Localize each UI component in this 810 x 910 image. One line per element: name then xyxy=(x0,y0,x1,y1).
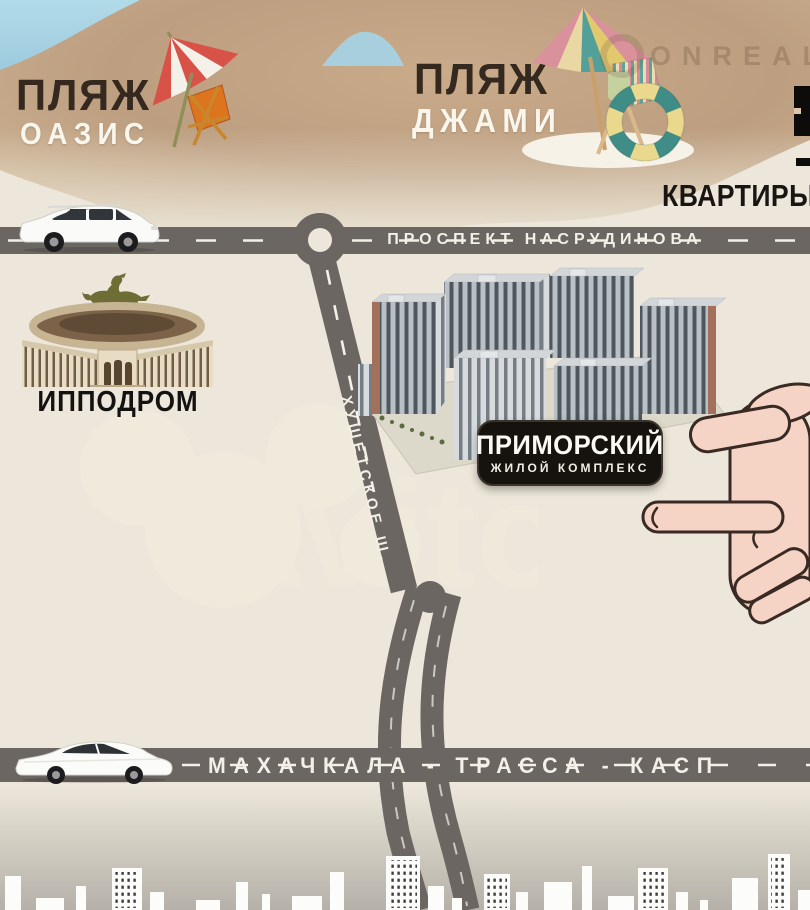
beach-dzhami-icons xyxy=(520,2,705,172)
lifebuoy-icon xyxy=(606,83,684,161)
agency-watermark: ONREALT xyxy=(600,34,810,78)
listing-type-heading: КВАРТИРЫ xyxy=(662,178,810,214)
hippodrome-label: ИППОДРОМ xyxy=(35,386,201,419)
deck-chair-orange-icon xyxy=(188,85,230,145)
complex-subtitle: ЖИЛОЙ КОМПЛЕКС xyxy=(491,461,650,475)
cropped-logo-fragment xyxy=(794,86,810,136)
stadium-icon xyxy=(20,302,215,387)
map-illustration: Avito ПРОСПЕКТ Н xyxy=(0,0,810,910)
road-junction xyxy=(414,581,446,613)
beach-oasis-icons xyxy=(130,25,250,160)
suv-car-icon xyxy=(14,194,164,256)
cropped-dash-fragment xyxy=(796,158,810,166)
city-skyline xyxy=(0,842,810,910)
trassa-label: МАХАЧКАЛА - ТРАССА - КАСП xyxy=(208,753,720,779)
pointing-hand-icon xyxy=(635,382,810,627)
avenue-label: ПРОСПЕКТ НАСРУДИНОВА xyxy=(372,231,718,249)
agency-logo-ring-icon xyxy=(600,34,644,78)
agency-watermark-text: ONREALT xyxy=(650,41,810,72)
sedan-car-icon xyxy=(12,730,177,786)
